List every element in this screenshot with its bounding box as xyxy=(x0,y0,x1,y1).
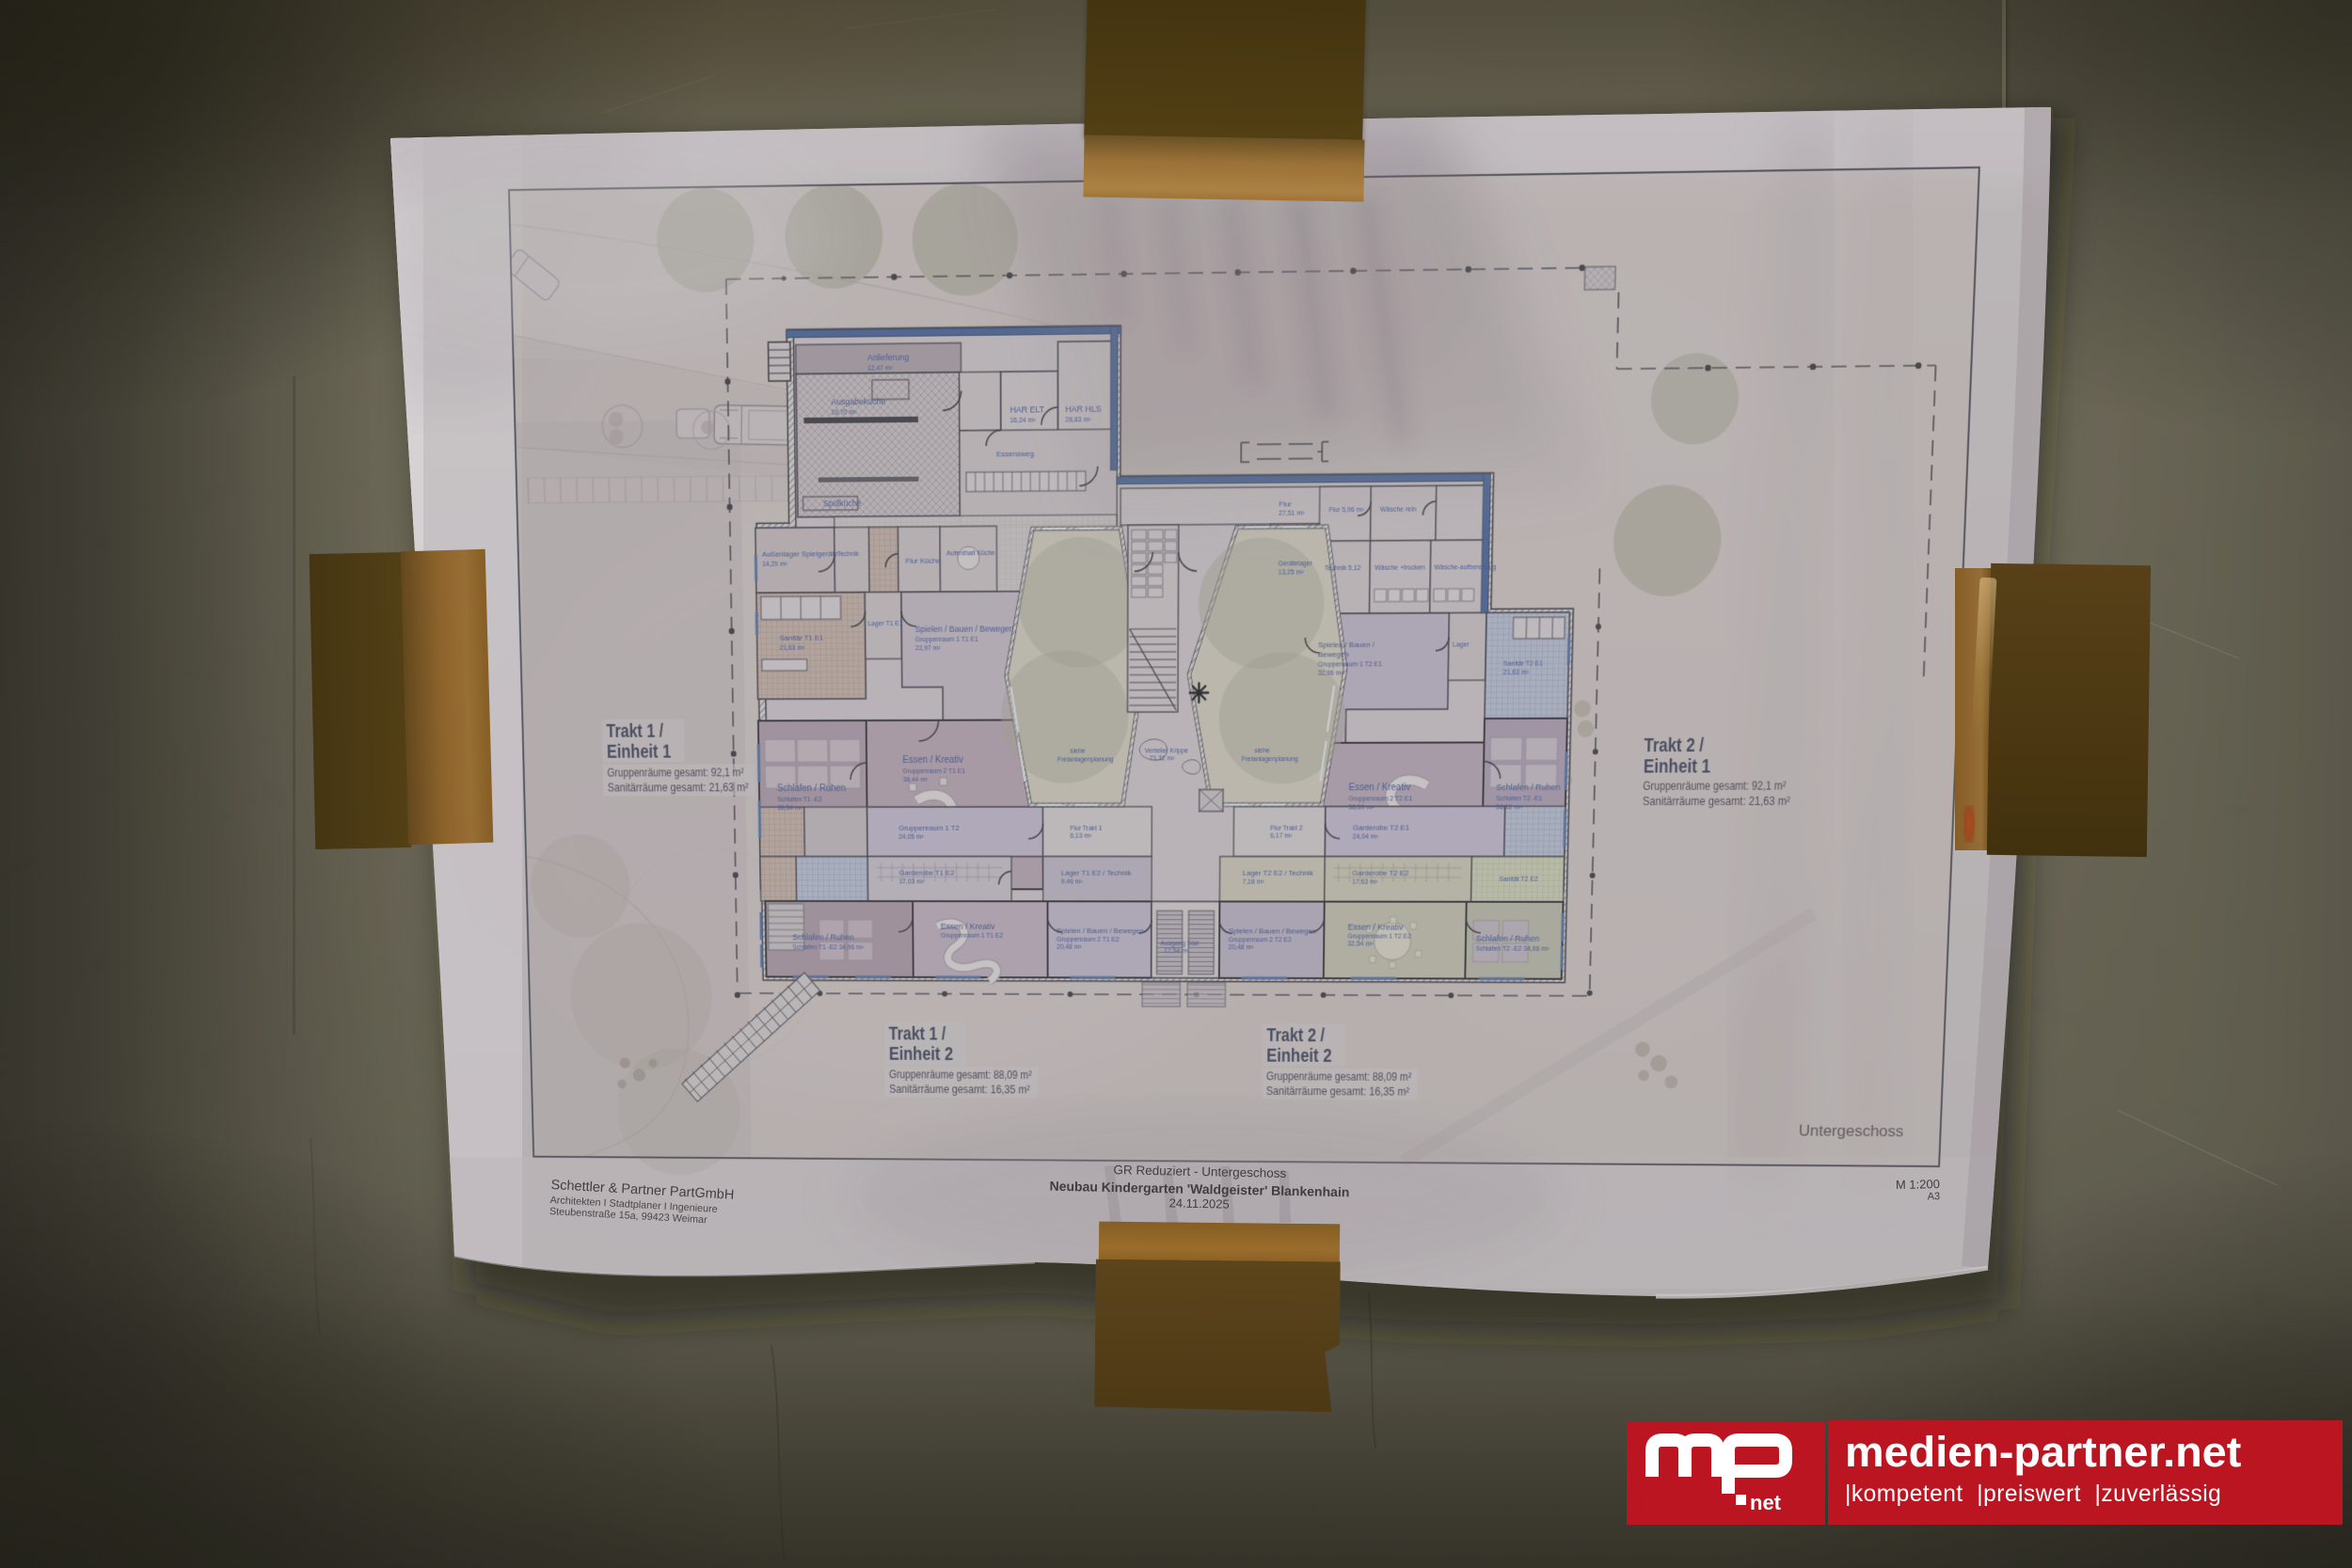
svg-text:net: net xyxy=(1750,1491,1782,1514)
